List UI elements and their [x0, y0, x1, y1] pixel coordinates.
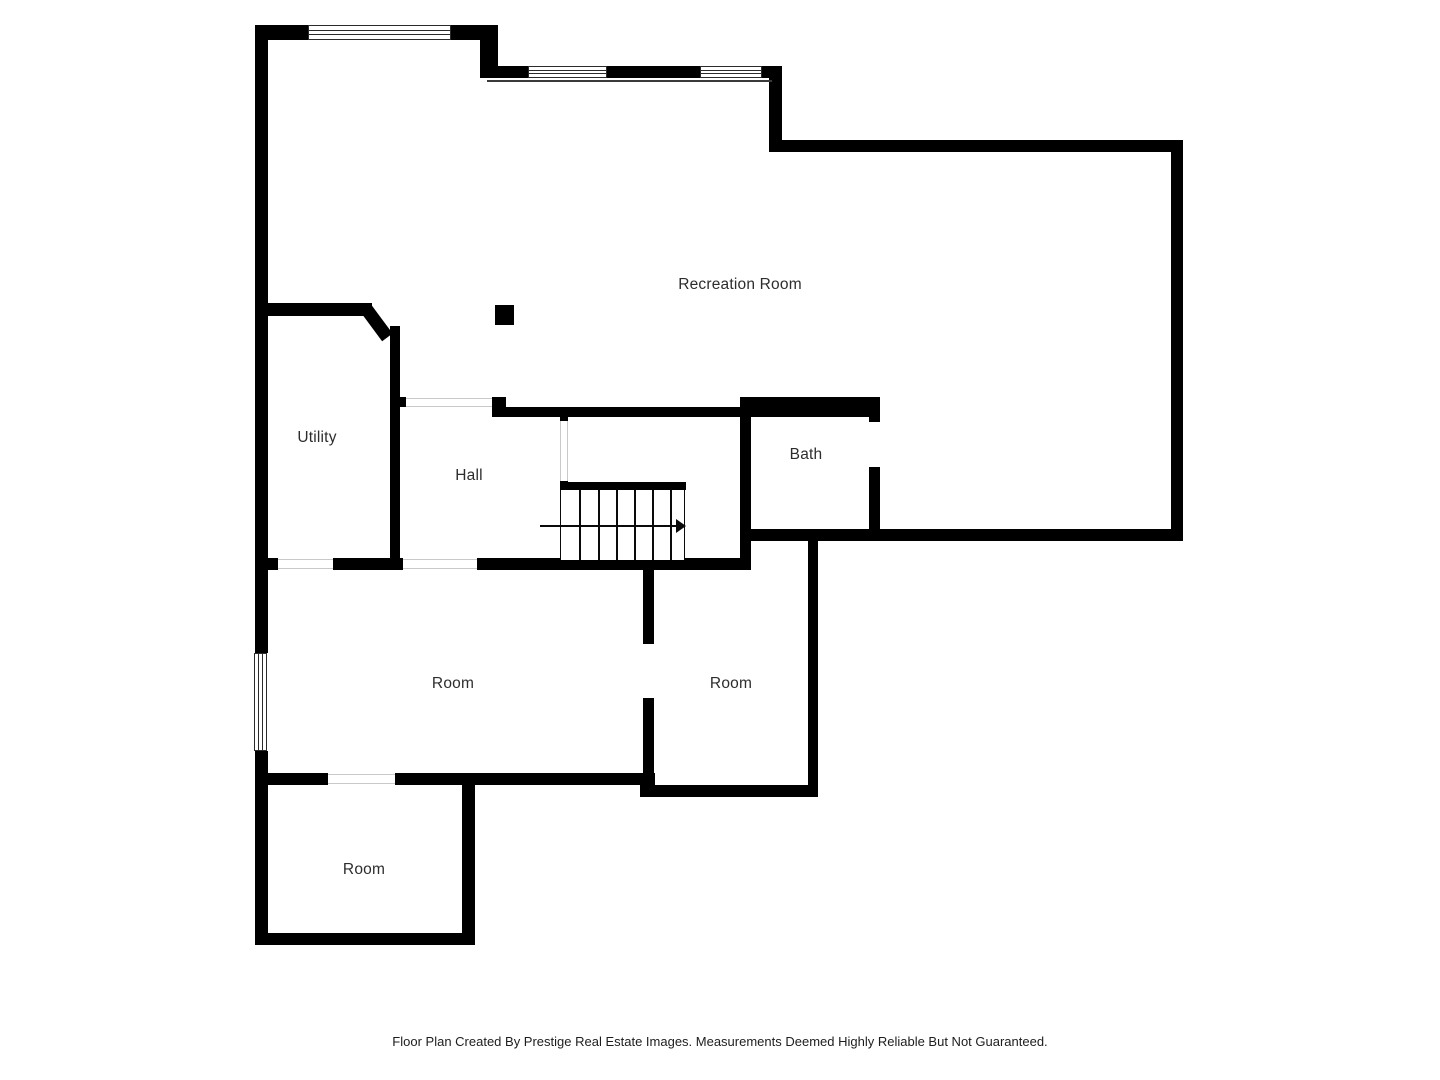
opening-hall-to-room — [403, 559, 477, 569]
window-pane-line — [262, 654, 263, 750]
window-top — [308, 25, 451, 40]
north-wall-sill-line — [487, 80, 772, 82]
wall-leftroom-bottom-a — [268, 773, 328, 785]
wall-bath-right-upper — [869, 417, 880, 422]
window-pane-line — [701, 70, 761, 71]
window-pane-line — [309, 30, 450, 31]
window-north-right — [700, 66, 762, 78]
wall-bottomroom-bottom — [255, 933, 475, 945]
room-label-bath: Bath — [790, 446, 823, 464]
wall-rightroom-bottom — [640, 785, 818, 797]
opening-utility-to-room — [278, 559, 333, 569]
wall-stair-column-upper — [560, 407, 568, 421]
room-label-room-right: Room — [710, 675, 752, 693]
wall-utility-top — [262, 303, 372, 316]
wall-outer-left-upper — [255, 25, 268, 653]
window-pane-line — [309, 34, 450, 35]
room-label-hall: Hall — [455, 467, 483, 485]
wall-bath-right-lower — [869, 467, 880, 529]
wall-middle-segment-b — [333, 558, 403, 570]
window-north-left — [528, 66, 607, 78]
window-pane-line — [258, 654, 259, 750]
wall-outer-left-lower — [255, 751, 268, 945]
wall-room-divider-upper — [643, 570, 654, 644]
wall-hall-top — [506, 407, 743, 417]
room-label-utility: Utility — [297, 429, 336, 447]
footer-disclaimer: Floor Plan Created By Prestige Real Esta… — [0, 1034, 1440, 1049]
opening-room-to-bottomroom — [328, 774, 395, 784]
wall-bath-top — [743, 397, 880, 417]
window-pane-line — [529, 73, 606, 74]
wall-middle-segment-a — [268, 558, 278, 570]
wall-bottomroom-right — [462, 780, 475, 945]
wall-north-segment-a — [480, 66, 528, 78]
window-west — [254, 653, 267, 751]
wall-rightroom-right — [808, 541, 818, 797]
stairs-direction-line — [540, 525, 677, 527]
floor-plan: Recreation Room Utility Hall Bath Room R… — [0, 0, 1440, 1080]
stairs-direction-arrow-icon — [676, 519, 686, 533]
wall-northeast-horizontal — [769, 140, 1183, 152]
wall-stairs-top — [560, 482, 686, 490]
wall-utility-right — [390, 326, 400, 568]
window-pane-line — [701, 73, 761, 74]
wall-leftroom-bottom-b — [395, 773, 655, 785]
wall-recreation-bottom — [751, 529, 1183, 541]
wall-outer-right — [1171, 140, 1183, 541]
opening-hall-to-recreation — [406, 398, 492, 407]
opening-hall-to-stairs — [560, 421, 568, 481]
wall-bath-left — [740, 397, 751, 567]
wall-utility-diagonal — [360, 303, 393, 341]
wall-room-divider-lower — [643, 698, 654, 785]
room-label-recreation: Recreation Room — [678, 276, 802, 294]
structural-post — [495, 305, 514, 325]
window-pane-line — [529, 70, 606, 71]
room-label-room-center: Room — [432, 675, 474, 693]
wall-hall-corner — [492, 397, 506, 417]
room-label-room-bottom: Room — [343, 861, 385, 879]
wall-north-segment-b — [607, 66, 700, 78]
